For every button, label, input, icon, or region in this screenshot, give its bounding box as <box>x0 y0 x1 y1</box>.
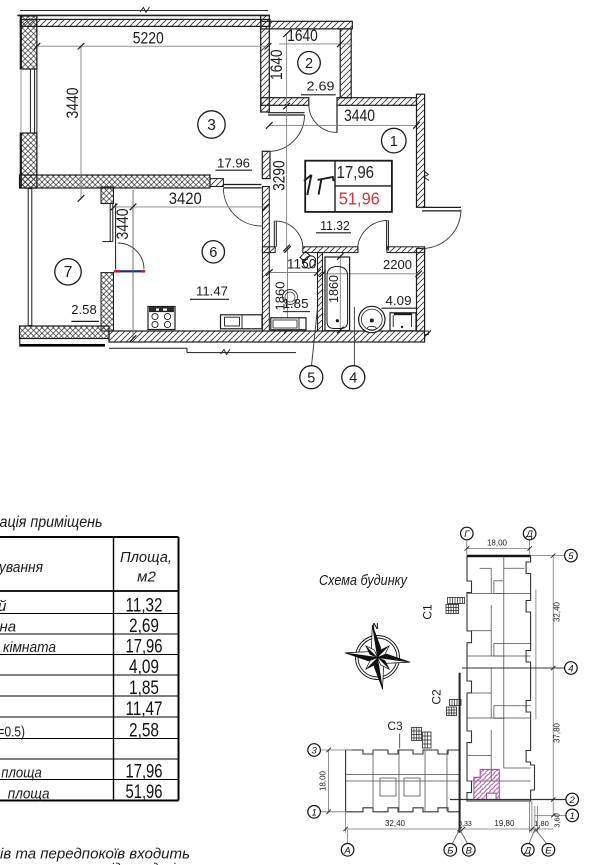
svg-text:4: 4 <box>349 370 357 386</box>
svg-text:2.69: 2.69 <box>307 79 335 94</box>
svg-text:5: 5 <box>568 551 574 562</box>
svg-text:Д: Д <box>525 529 533 540</box>
svg-text:51,96: 51,96 <box>126 782 163 803</box>
svg-text:Б: Б <box>447 845 453 856</box>
svg-text:17,96: 17,96 <box>337 162 375 182</box>
svg-text:11.47: 11.47 <box>196 284 228 299</box>
svg-text:Г: Г <box>464 529 470 540</box>
svg-text:площа: площа <box>1 765 42 782</box>
svg-text:2.58: 2.58 <box>71 302 97 317</box>
svg-text:площа: площа <box>8 785 50 802</box>
svg-text:2,69: 2,69 <box>129 616 159 637</box>
svg-text:1640: 1640 <box>287 26 318 45</box>
svg-text:1640: 1640 <box>267 49 286 80</box>
svg-text:Площа,: Площа, <box>120 549 172 566</box>
svg-text:37,80: 37,80 <box>553 722 562 743</box>
svg-text:0,33: 0,33 <box>458 821 472 828</box>
svg-text:1,80: 1,80 <box>534 819 549 828</box>
svg-text:32,40: 32,40 <box>385 819 406 828</box>
svg-text:В: В <box>466 845 473 856</box>
svg-text:3420: 3420 <box>169 189 202 208</box>
svg-text:11,47: 11,47 <box>126 699 163 720</box>
svg-text:3290: 3290 <box>270 160 289 191</box>
svg-text:2,58: 2,58 <box>129 720 159 741</box>
svg-text:м2: м2 <box>137 569 156 586</box>
svg-text:1: 1 <box>570 811 575 822</box>
svg-text:11,32: 11,32 <box>126 595 163 616</box>
svg-text:5: 5 <box>307 370 315 386</box>
svg-text:4.09: 4.09 <box>386 293 412 308</box>
svg-text:С3: С3 <box>387 719 403 733</box>
svg-text:11.32: 11.32 <box>320 218 350 233</box>
svg-text:17,96: 17,96 <box>126 636 163 657</box>
svg-text:18,00: 18,00 <box>319 770 328 791</box>
svg-text:3,60: 3,60 <box>553 813 562 828</box>
svg-text:6: 6 <box>209 245 217 261</box>
svg-text:4,09: 4,09 <box>129 657 159 678</box>
svg-text:3: 3 <box>207 117 216 134</box>
svg-text:5220: 5220 <box>133 29 164 48</box>
svg-text:ування: ування <box>0 559 43 576</box>
svg-text:2200: 2200 <box>383 258 412 272</box>
svg-text:2: 2 <box>305 56 313 72</box>
svg-text:о площу квартир від коридорів: о площу квартир від коридорів <box>0 861 182 865</box>
svg-text:7: 7 <box>64 264 73 281</box>
svg-text:А: А <box>343 845 350 856</box>
svg-text:1,85: 1,85 <box>129 678 159 699</box>
svg-text:1: 1 <box>311 807 316 818</box>
svg-text:51,96: 51,96 <box>339 189 380 209</box>
svg-text:на: на <box>0 619 16 636</box>
svg-text:кімната: кімната <box>3 639 56 656</box>
svg-text:С2: С2 <box>430 689 444 705</box>
svg-text:й: й <box>0 598 7 615</box>
svg-text:17,96: 17,96 <box>126 761 163 782</box>
svg-text:4: 4 <box>568 664 573 675</box>
svg-text:Схема будинку: Схема будинку <box>319 573 408 589</box>
svg-text:1: 1 <box>390 134 398 150</box>
svg-text:3440: 3440 <box>344 106 375 125</box>
svg-text:3440: 3440 <box>63 88 82 119</box>
svg-text:С1: С1 <box>421 604 435 620</box>
svg-text:=0.5): =0.5) <box>0 725 25 741</box>
svg-text:19,80: 19,80 <box>494 819 515 828</box>
svg-text:Д: Д <box>523 845 531 856</box>
svg-text:3: 3 <box>311 746 317 757</box>
svg-text:17.96: 17.96 <box>217 155 250 170</box>
svg-text:N: N <box>373 622 379 631</box>
svg-text:18,00: 18,00 <box>487 539 508 548</box>
svg-text:1860: 1860 <box>327 275 341 303</box>
svg-text:Е: Е <box>545 845 552 856</box>
svg-text:32,40: 32,40 <box>553 601 562 622</box>
svg-text:2: 2 <box>569 795 576 806</box>
svg-text:3440: 3440 <box>113 209 132 240</box>
svg-text:ація приміщень: ація приміщень <box>0 514 103 531</box>
